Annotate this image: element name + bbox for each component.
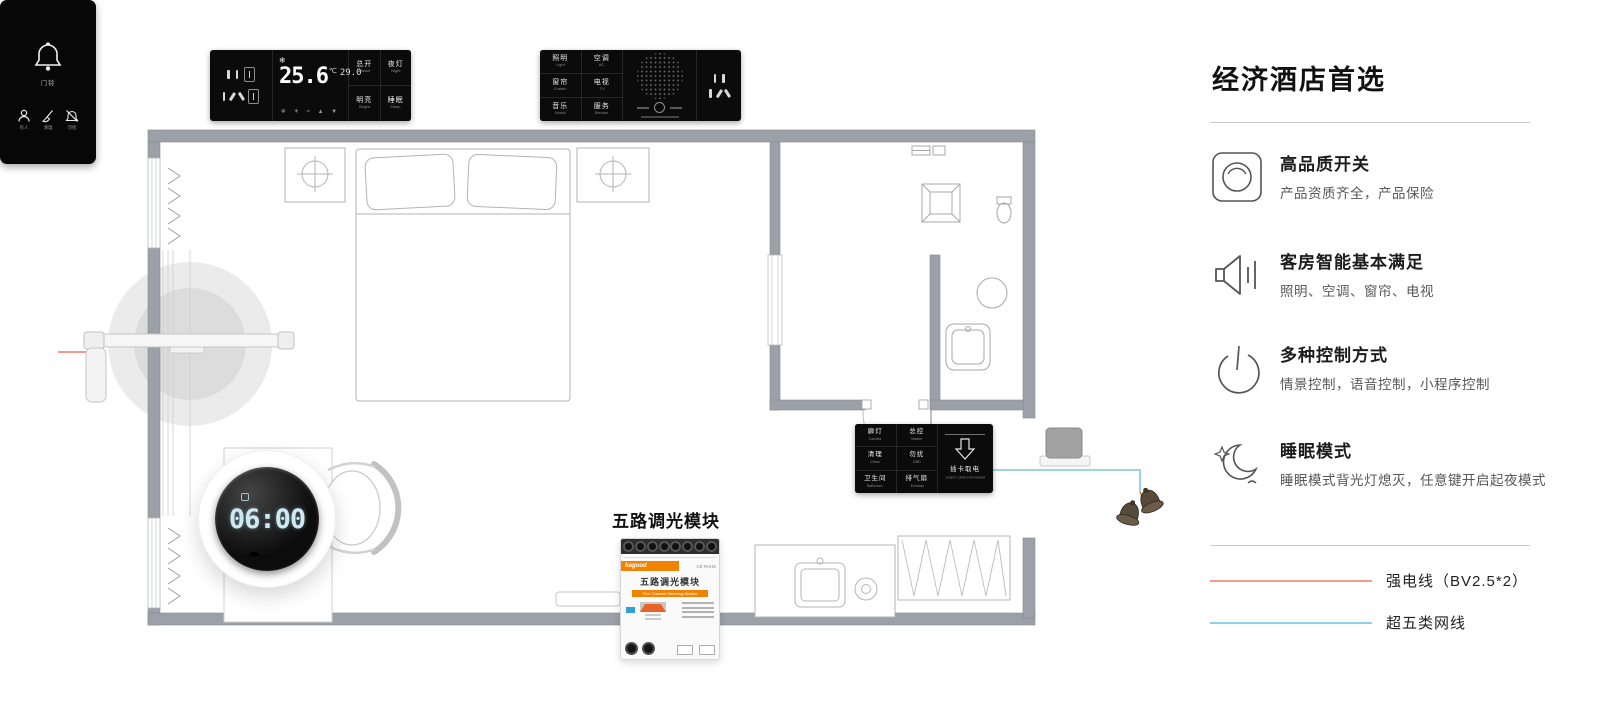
card-panel-button[interactable]: 清理 Clean: [855, 447, 896, 469]
feature-desc: 照明、空调、窗帘、电视: [1280, 280, 1550, 300]
bedside-clock: 06:00: [198, 450, 336, 588]
moon-icon: [1210, 437, 1264, 491]
right-key-icon[interactable]: [670, 107, 682, 109]
speaker-grille: [623, 50, 696, 121]
card-panel-button[interactable]: 总控 Master: [897, 424, 938, 446]
feature-sleep: 睡眠模式 睡眠模式背光灯熄灭，任意键开启起夜模式: [1210, 437, 1550, 489]
thermostat-panel: ❄ 25.6 ℃ 29.0 ❄ ☀ ≈ ▲ ▼ 总开 Master 夜灯 Nig…: [210, 50, 411, 121]
divider: [1210, 122, 1530, 123]
thermostat-display: ❄ 25.6 ℃ 29.0 ❄ ☀ ≈ ▲ ▼: [273, 50, 348, 121]
brand-logo: hagood: [621, 561, 679, 571]
feature-title: 客房智能基本满足: [1280, 248, 1550, 273]
card-panel-button[interactable]: 排气扇 Exhaust: [897, 471, 938, 493]
scene-button[interactable]: 服务 Service: [582, 98, 623, 121]
feature-desc: 产品资质齐全，产品保险: [1280, 182, 1550, 202]
label-chip: [626, 607, 635, 613]
legend-power-line: 强电线（BV2.5*2）: [1210, 570, 1528, 591]
cert-marks: CE RoHS: [696, 564, 719, 569]
scene-button[interactable]: 电视 TV: [582, 74, 623, 97]
terminal-strip: [621, 539, 719, 554]
switch-icon: [1210, 150, 1264, 204]
bathroom-fixtures: [912, 146, 1011, 370]
feature-title: 高品质开关: [1280, 150, 1550, 175]
feature-title: 多种控制方式: [1280, 341, 1550, 366]
network-line-swatch: [1210, 622, 1372, 624]
rocker-switch-icon: [248, 89, 259, 104]
card-slot-line: [945, 434, 985, 435]
thermostat-button[interactable]: 睡眠 Sleep: [381, 86, 412, 121]
dimmer-module: hagood CE RoHS 五路调光模块 Five Channel Dimmi…: [620, 538, 720, 660]
module-button[interactable]: [699, 645, 715, 655]
page-title: 经济酒店首选: [1212, 58, 1386, 97]
feature-desc: 情景控制，语音控制，小程序控制: [1280, 373, 1550, 393]
socket-icon: [210, 50, 272, 121]
alarm-icon: [241, 493, 249, 501]
feature-control: 多种控制方式 情景控制，语音控制，小程序控制: [1210, 341, 1550, 393]
left-key-icon[interactable]: [637, 107, 649, 109]
scene-button[interactable]: 照明 Light: [540, 50, 581, 73]
power-line-swatch: [1210, 580, 1372, 582]
temperature-unit: ℃: [329, 67, 337, 75]
bottom-terminals: [621, 642, 719, 659]
closet: [898, 536, 1010, 600]
scene-button[interactable]: 窗帘 Curtain: [540, 74, 581, 97]
feature-switch: 高品质开关 产品资质齐全，产品保险: [1210, 150, 1550, 202]
legend-label: 超五类网线: [1386, 612, 1466, 633]
card-panel-button[interactable]: 廊灯 Corridor: [855, 424, 896, 446]
rocker-switch-icon: [244, 67, 255, 82]
scene-button[interactable]: 音乐 Music: [540, 98, 581, 121]
network-wire: [993, 470, 1140, 492]
socket-icon: [697, 50, 741, 121]
insert-card-slot[interactable]: 插卡取电 INSERT CARD FOR POWER: [938, 424, 992, 493]
clock-time: 06:00: [229, 504, 305, 535]
bench: [556, 592, 620, 606]
warning-icon: [640, 602, 666, 620]
power-icon: [1210, 341, 1264, 395]
card-panel-button[interactable]: 勿扰 DND: [897, 447, 938, 469]
module-subtitle: Five Channel Dimming Module: [632, 590, 708, 597]
module-title: 五路调光模块: [621, 575, 719, 588]
card-panel-button[interactable]: 卫生间 Bathroom: [855, 471, 896, 493]
insert-card-arrow-icon: [954, 437, 976, 461]
clock-button[interactable]: [249, 552, 259, 557]
temperature-value: 25.6: [279, 66, 328, 88]
notes-lines: [682, 602, 714, 618]
feature-speaker: 客房智能基本满足 照明、空调、窗帘、电视: [1210, 248, 1550, 300]
scene-button[interactable]: 空调 AC: [582, 50, 623, 73]
module-callout: 五路调光模块: [612, 507, 720, 532]
scene-panel: 照明 Light 空调 AC 窗帘 Curtain 电视 TV 音乐 Music…: [540, 50, 741, 121]
module-button[interactable]: [677, 645, 693, 655]
mode-icons: ❄ ☀ ≈ ▲ ▼: [273, 108, 348, 115]
entry-appliance: [1040, 428, 1090, 466]
terminal-scale: [624, 554, 716, 558]
speaker-grille-icon: [637, 53, 683, 99]
legend-label: 强电线（BV2.5*2）: [1386, 570, 1528, 591]
feature-title: 睡眠模式: [1280, 437, 1550, 462]
legend-network-line: 超五类网线: [1210, 612, 1466, 633]
kitchenette: [755, 545, 895, 617]
card-power-panel: 廊灯 Corridor 总控 Master 清理 Clean 勿扰 DND 卫生…: [855, 424, 993, 493]
feature-desc: 睡眠模式背光灯熄灭，任意键开启起夜模式: [1280, 469, 1550, 489]
thermostat-button[interactable]: 夜灯 Night: [381, 50, 412, 85]
bed: [356, 149, 570, 401]
speaker-icon: [1210, 248, 1264, 302]
logo-icon: [654, 102, 665, 113]
divider: [1210, 545, 1530, 546]
clock-face[interactable]: 06:00: [215, 467, 319, 571]
hotel-room-smart-plan: ❄ 25.6 ℃ 29.0 ❄ ☀ ≈ ▲ ▼ 总开 Master 夜灯 Nig…: [0, 0, 1620, 720]
thermostat-button[interactable]: 明亮 Bright: [349, 86, 380, 121]
caption-line: [641, 116, 679, 118]
